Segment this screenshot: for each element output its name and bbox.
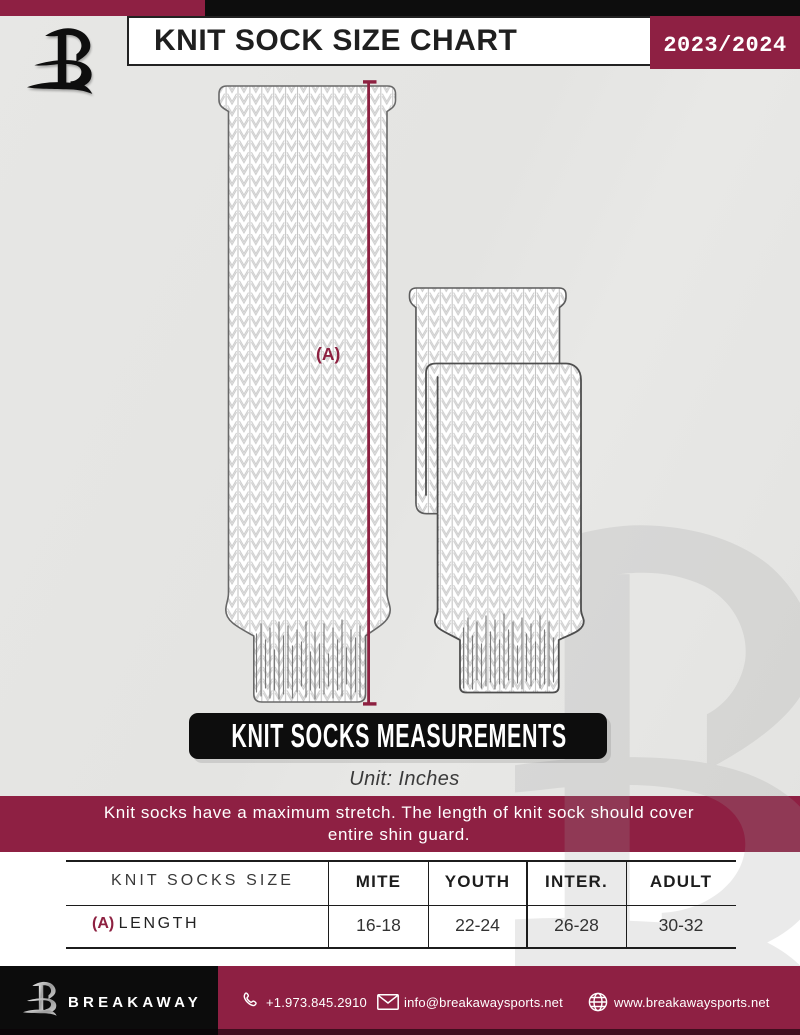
svg-text:(A): (A)	[316, 344, 340, 364]
